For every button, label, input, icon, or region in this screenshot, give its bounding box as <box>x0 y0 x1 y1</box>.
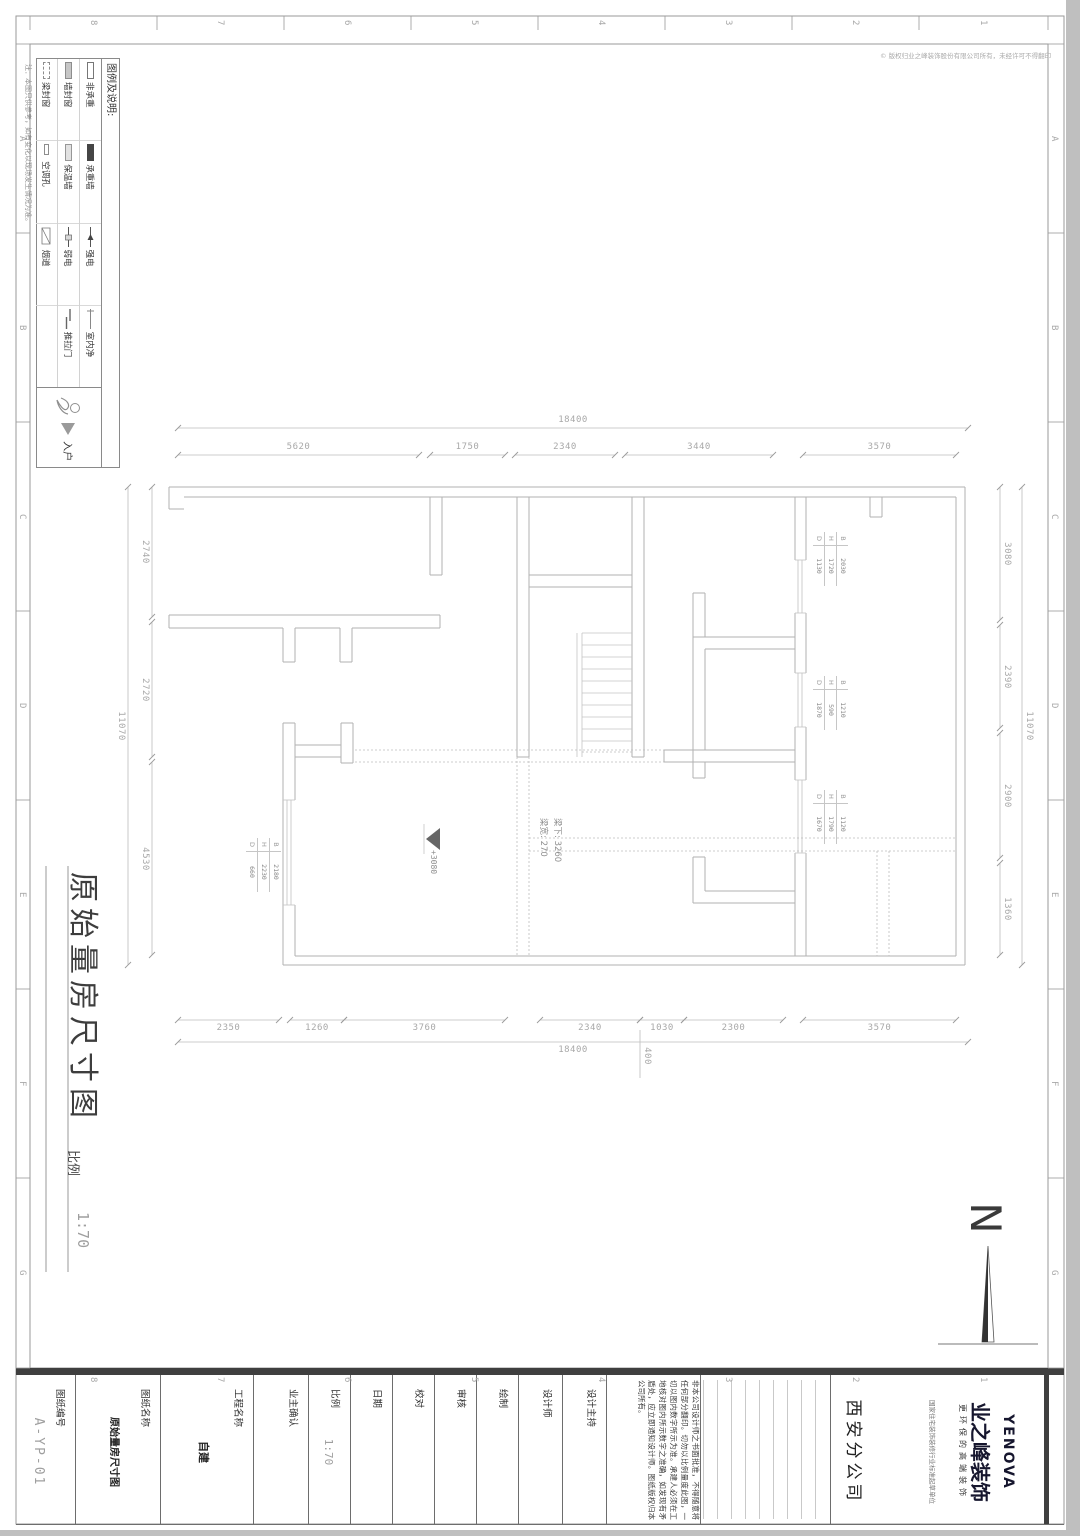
field-value-sheet-no: A-YP-01 <box>31 1418 46 1487</box>
grid-ref-number: 1 <box>978 20 988 26</box>
dimension-label: 3760 <box>413 1023 437 1033</box>
grid-ref-number: 6 <box>342 20 352 26</box>
drawing-sheet: © 版权归业之峰装饰股份有限公司所有，未经许可不得翻印 图例及说明: 非承重 承… <box>0 0 1066 1530</box>
grid-ref-letter: F <box>17 1081 27 1087</box>
grid-ref-letter: F <box>1049 1081 1059 1087</box>
grid-ref-number: 3 <box>723 20 733 26</box>
field-value-scale: 1:70 <box>322 1439 335 1466</box>
dimension-label: 3440 <box>687 442 711 452</box>
grid-ref-letter: A <box>17 136 27 142</box>
dimension-label: 11070 <box>116 711 126 741</box>
grid-ref-number: 5 <box>469 20 479 26</box>
field-label-project-name: 工程名称 <box>232 1389 246 1427</box>
grid-ref-letter: G <box>17 1270 27 1276</box>
field-label-proofread: 校对 <box>413 1389 427 1408</box>
dimension-label: 2340 <box>553 442 577 452</box>
grid-ref-letter: E <box>17 892 27 898</box>
grid-ref-number: 7 <box>215 1377 225 1383</box>
dimension-label: 1360 <box>1002 897 1012 921</box>
dimension-label: 2300 <box>722 1023 746 1033</box>
dimension-label: 2900 <box>1002 784 1012 808</box>
field-label-review: 审核 <box>455 1389 469 1408</box>
field-value-sheet-name: 原始量房尺寸图 <box>108 1417 123 1487</box>
field-value-project-name: 自建 <box>196 1441 212 1463</box>
field-label-sheet-name: 图纸名称 <box>139 1389 153 1427</box>
grid-ref-letter: E <box>1049 892 1059 898</box>
grid-ref-number: 3 <box>723 1377 733 1383</box>
dimension-label: 1260 <box>305 1023 329 1033</box>
dimension-label: 2340 <box>578 1023 602 1033</box>
dimension-label: 4530 <box>140 847 150 871</box>
grid-ref-letter: C <box>17 514 27 520</box>
field-label-date: 日期 <box>371 1389 385 1408</box>
north-needle-icon <box>0 0 1066 1400</box>
dimension-label: 11070 <box>1024 711 1034 741</box>
grid-ref-number: 2 <box>850 20 860 26</box>
field-label-scale: 比例 <box>329 1389 343 1408</box>
grid-ref-letter: G <box>1049 1270 1059 1276</box>
field-label-drafter: 绘制 <box>497 1389 511 1408</box>
grid-ref-number: 1 <box>978 1377 988 1383</box>
disclaimer-text: 非本公司设计师之书面批准，不得随意将任何部分翻印。切勿以比例量度此图，一切以图内… <box>635 1380 700 1520</box>
grid-ref-number: 4 <box>596 1377 606 1383</box>
dimension-label: 2720 <box>140 678 150 702</box>
grid-ref-letter: B <box>17 325 27 331</box>
grid-ref-number: 8 <box>88 1377 98 1383</box>
certification-text: 国家住宅装饰装修行业标准起草单位 <box>928 1400 938 1504</box>
dimension-label: 18400 <box>558 415 588 425</box>
grid-ref-letter: C <box>1049 514 1059 520</box>
branch-name: 西安分公司 <box>843 1400 868 1505</box>
grid-ref-number: 6 <box>342 1377 352 1383</box>
dimension-label-offset: 400 <box>642 1047 652 1065</box>
grid-ref-number: 7 <box>215 20 225 26</box>
dimension-label: 1030 <box>650 1023 674 1033</box>
dimension-label: 2390 <box>1002 665 1012 689</box>
dimension-label: 18400 <box>558 1045 588 1055</box>
grid-ref-number: 4 <box>596 20 606 26</box>
dimension-label: 3570 <box>868 442 892 452</box>
grid-ref-number: 8 <box>88 20 98 26</box>
logo-cn: 业之峰装饰 <box>967 1402 996 1502</box>
field-label-owner-confirm: 业主确认 <box>287 1389 301 1427</box>
grid-ref-letter: A <box>1049 136 1059 142</box>
logo-en: YENOVA <box>1000 1414 1016 1490</box>
grid-ref-letter: D <box>17 703 27 709</box>
dimension-label: 1750 <box>456 442 480 452</box>
dimension-label: 3080 <box>1002 542 1012 566</box>
field-label-design-director: 设计主持 <box>585 1389 599 1427</box>
dimension-label: 2350 <box>217 1023 241 1033</box>
dimension-label: 5620 <box>287 442 311 452</box>
dimension-label: 3570 <box>868 1023 892 1033</box>
grid-ref-letter: D <box>1049 703 1059 709</box>
grid-ref-letter: B <box>1049 325 1059 331</box>
dimension-label: 2740 <box>140 540 150 564</box>
grid-ref-number: 5 <box>469 1377 479 1383</box>
field-label-designer: 设计师 <box>541 1389 555 1418</box>
grid-ref-number: 2 <box>850 1377 860 1383</box>
field-label-sheet-no: 图纸编号 <box>54 1389 68 1427</box>
